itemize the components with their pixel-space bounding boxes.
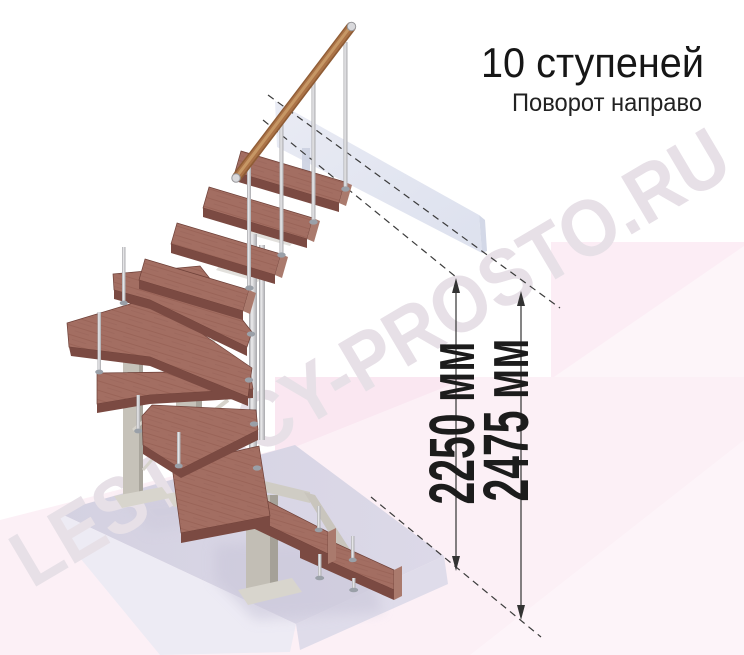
svg-text:10 ступеней: 10 ступеней <box>481 39 704 86</box>
svg-text:Поворот направо: Поворот направо <box>512 89 702 117</box>
svg-text:2475 мм: 2475 мм <box>471 338 542 501</box>
